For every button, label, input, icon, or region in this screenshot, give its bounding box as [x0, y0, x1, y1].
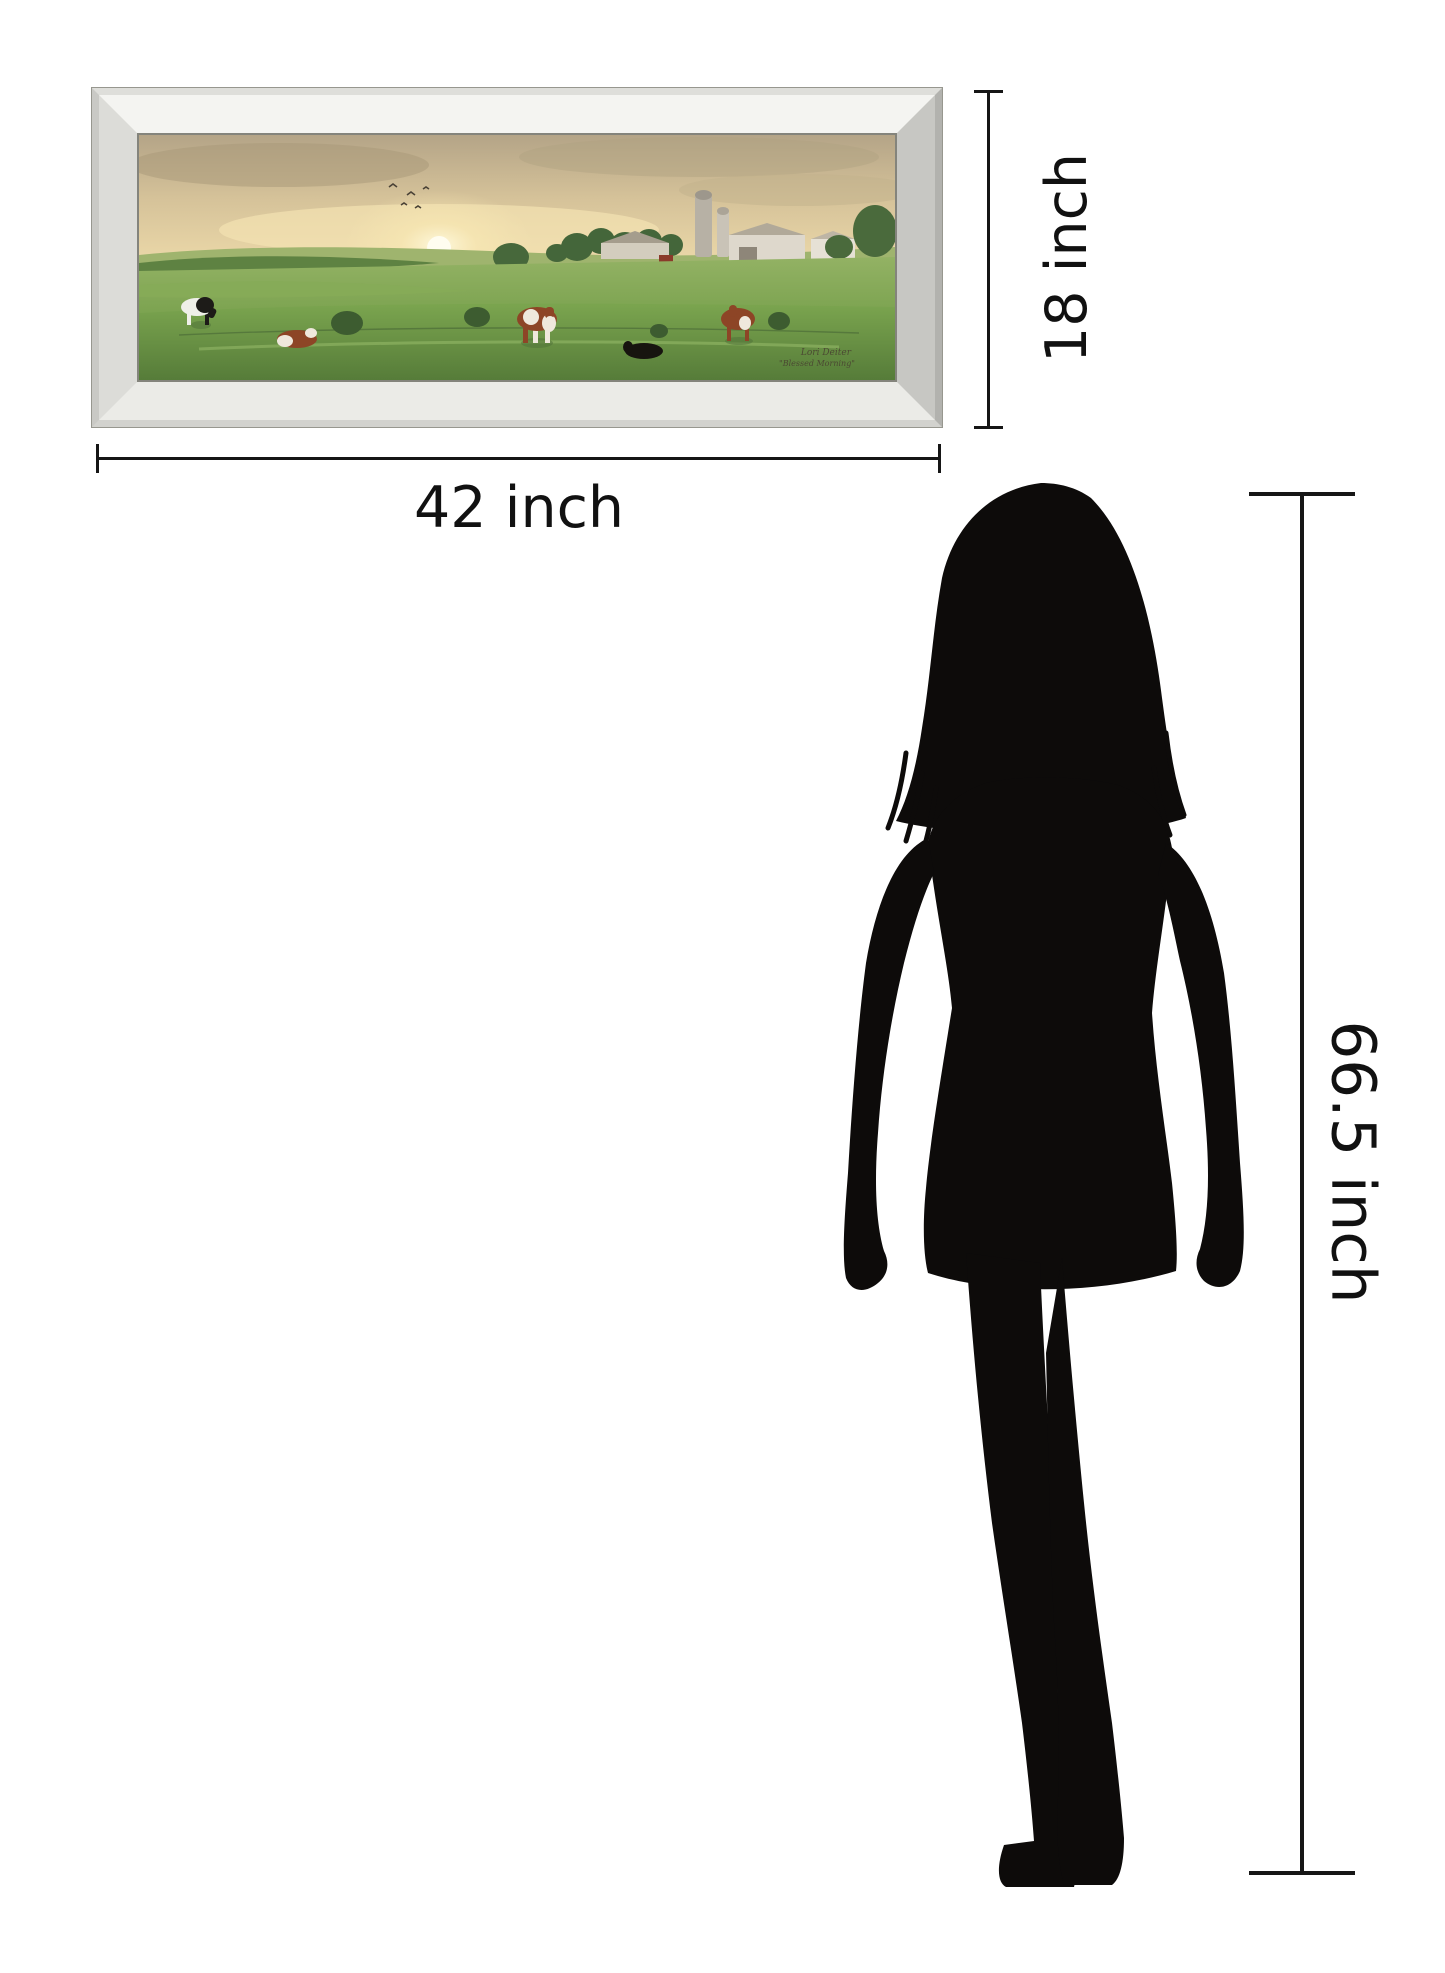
artist-signature: Lori Deiter [800, 348, 852, 358]
height-dimension-cap-top [974, 90, 1003, 93]
woman-silhouette-icon [836, 483, 1248, 1889]
width-dimension-cap-right [938, 444, 941, 473]
height-dimension-cap-bottom [974, 426, 1003, 429]
width-dimension-label: 42 inch [97, 475, 941, 541]
art-title-signature: "Blessed Morning" [779, 359, 855, 368]
person-dimension-cap-bottom [1249, 1871, 1355, 1875]
frame-bevel: Lori Deiter "Blessed Morning" [99, 95, 935, 420]
height-dimension-label: 18 inch [1034, 153, 1100, 363]
person-dimension-cap-top [1249, 492, 1355, 496]
width-dimension-line [97, 457, 941, 460]
product-size-comparison-image: Lori Deiter "Blessed Morning" 42 inch 18… [0, 0, 1445, 1973]
person-dimension-line [1300, 492, 1304, 1875]
farm-scene-art: Lori Deiter "Blessed Morning" [139, 135, 895, 380]
person-height-label: 66.5 inch [1318, 1020, 1389, 1303]
framed-art: Lori Deiter "Blessed Morning" [137, 133, 897, 382]
cow-red-white-standing [517, 307, 557, 348]
width-dimension-cap-left [96, 444, 99, 473]
height-dimension-line [987, 90, 990, 429]
mirror-frame: Lori Deiter "Blessed Morning" [92, 88, 942, 427]
